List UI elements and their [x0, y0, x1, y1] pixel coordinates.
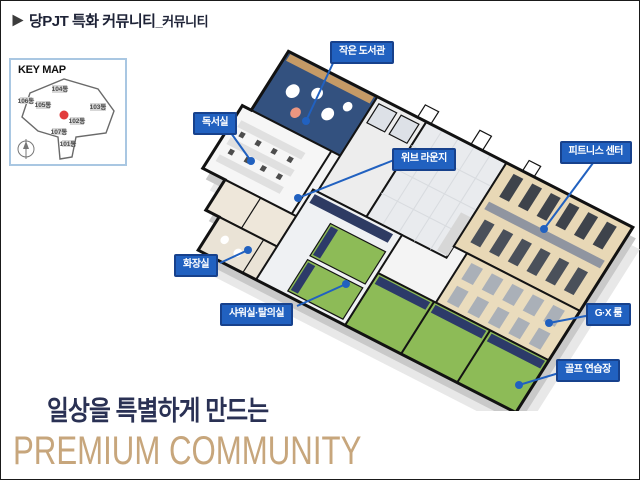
- callout-golf-range: 골프 연습장: [556, 359, 620, 382]
- callout-weve-lounge: 위브 라운지: [392, 148, 456, 171]
- callout-reading-room: 독서실: [193, 112, 237, 135]
- play-triangle-icon: [11, 14, 24, 27]
- callout-fitness-center: 피트니스 센터: [560, 141, 632, 164]
- tagline-korean: 일상을 특별하게 만드는: [47, 389, 268, 428]
- slide: { "header": { "title_main": "당PJT 특화 커뮤니…: [0, 0, 640, 480]
- callout-restroom: 화장실: [174, 254, 218, 277]
- header: 당PJT 특화 커뮤니티_커뮤니티: [11, 10, 208, 31]
- building-label: 101동: [60, 140, 77, 148]
- building-label: 102동: [69, 117, 86, 125]
- keymap-location-marker: [60, 111, 69, 120]
- building-label: 104동: [52, 85, 69, 93]
- keymap-title: KEY MAP: [18, 64, 125, 76]
- keymap-site-plan: 104동 106동 105동 103동 102동 107동 101동: [11, 77, 125, 163]
- building-label: 103동: [90, 103, 107, 111]
- callout-small-library: 작은 도서관: [330, 41, 394, 64]
- building-label: 105동: [35, 101, 52, 109]
- floorplan-3d: [141, 31, 640, 411]
- keymap-panel: KEY MAP 104동 106동 105동 103동 102동 107동 10…: [9, 58, 127, 166]
- page-title: 당PJT 특화 커뮤니티_커뮤니티: [29, 10, 208, 31]
- building-label: 106동: [18, 97, 35, 105]
- tagline-english: PREMIUM COMMUNITY: [13, 429, 361, 474]
- compass-icon: [18, 139, 34, 159]
- callout-shower-locker: 샤워실·탈의실: [220, 303, 293, 326]
- page-title-main: 당PJT 특화 커뮤니티: [29, 13, 155, 30]
- page-title-suffix: _커뮤니티: [155, 14, 208, 29]
- callout-gx-room: G·X 룸: [586, 303, 631, 326]
- building-label: 107동: [51, 128, 68, 136]
